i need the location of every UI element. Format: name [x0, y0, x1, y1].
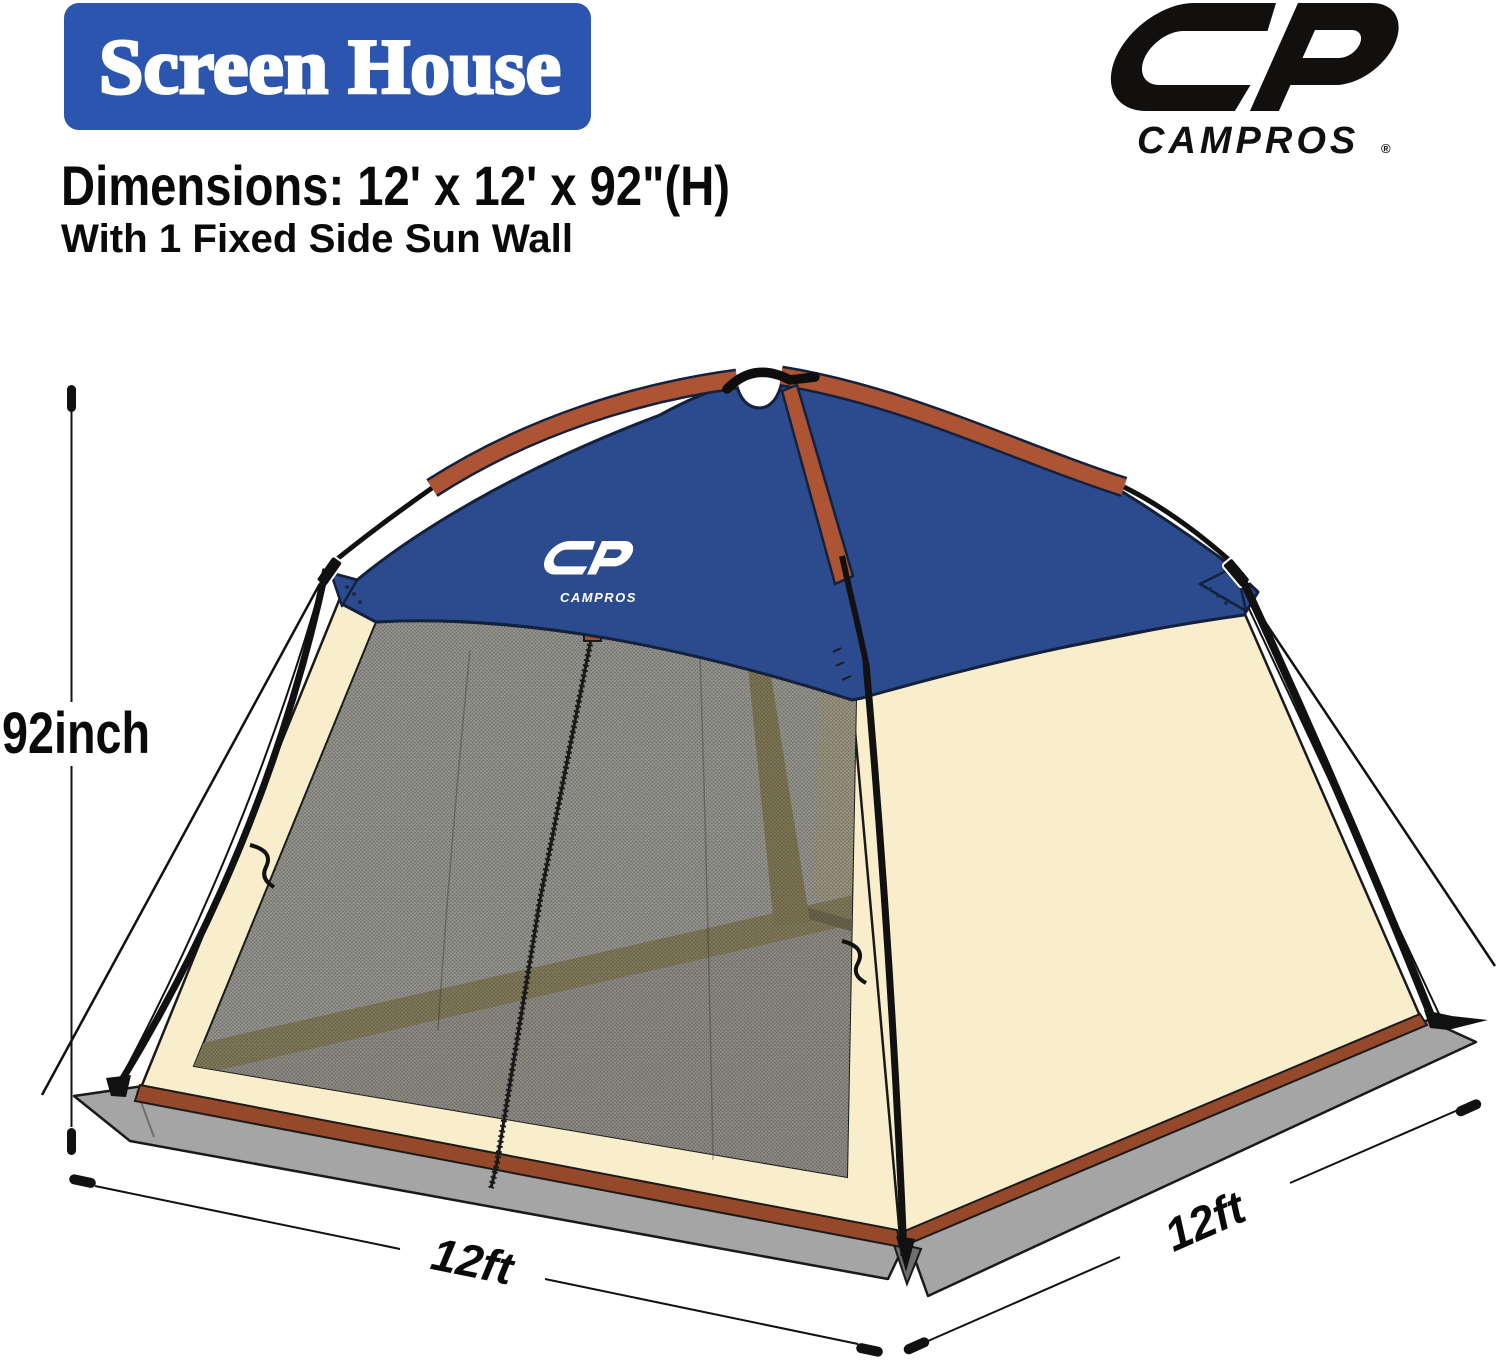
svg-text:92inch: 92inch	[2, 701, 150, 766]
svg-text:CAMPROS: CAMPROS	[1137, 120, 1359, 162]
svg-text:With 1 Fixed Side Sun Wall: With 1 Fixed Side Sun Wall	[61, 217, 573, 261]
svg-text:®: ®	[1381, 141, 1391, 156]
svg-text:Dimensions: 12' x 12' x 92"(H): Dimensions: 12' x 12' x 92"(H)	[61, 154, 730, 217]
svg-text:Screen House: Screen House	[99, 23, 561, 110]
svg-text:CAMPROS: CAMPROS	[560, 590, 637, 605]
